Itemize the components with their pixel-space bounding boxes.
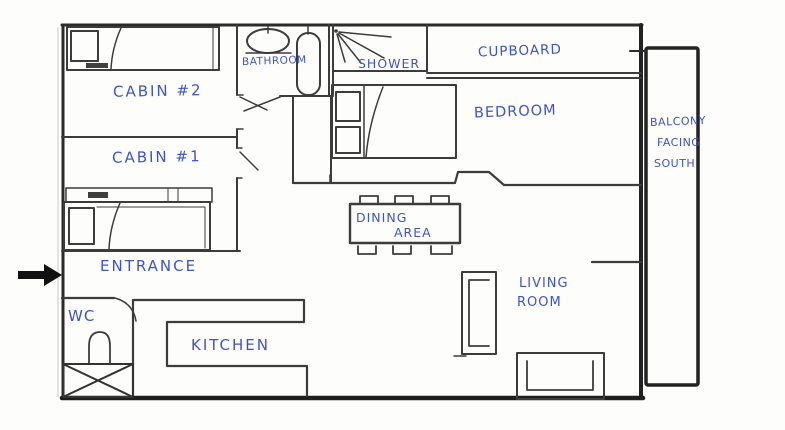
cabin1-nightstand [69,208,94,244]
label-cabin2: CABIN #2 [113,81,203,101]
floor-plan: CABIN #2 CABIN #1 BATHROOM SHOWER CUPBOA… [0,0,785,430]
label-balcony-line1: BALCONY [650,114,706,129]
sofa-horizontal [517,353,604,399]
cabin2-nightstand [71,31,98,61]
bathroom-door-swing [244,97,280,111]
crossed-box [63,364,133,397]
toilet-icon [89,332,110,363]
bedroom-bed [332,85,456,158]
label-entrance: ENTRANCE [100,257,197,275]
label-cupboard: CUPBOARD [478,42,562,61]
label-bedroom: BEDROOM [474,103,557,122]
chair-icon [431,246,452,254]
outer-walls [62,25,643,398]
label-wc: WC [68,307,95,325]
chair-icon [358,246,376,254]
chair-icon [393,246,411,254]
label-bathroom: BATHROOM [242,54,307,68]
pillow [336,127,360,153]
living-room-sofas [454,272,604,399]
bedroom-bottom-wall [293,172,641,185]
label-shower: SHOWER [358,56,420,71]
label-kitchen: KITCHEN [191,336,270,354]
cabin1-bed [64,188,212,250]
pillow [336,92,360,121]
label-dining-line2: AREA [394,225,432,240]
label-living-line1: LIVING [519,276,569,291]
label-living-line2: ROOM [517,295,562,310]
label-dining-line1: DINING [356,210,407,225]
cabin1-door-swing [240,152,258,170]
label-balcony-line3: SOUTH [654,157,695,170]
cabin2-bed [67,27,219,70]
entrance-arrow-icon [18,264,62,286]
label-cabin1: CABIN #1 [112,147,202,167]
sofa-vertical [462,272,496,354]
label-balcony-line2: FACING [657,136,700,149]
